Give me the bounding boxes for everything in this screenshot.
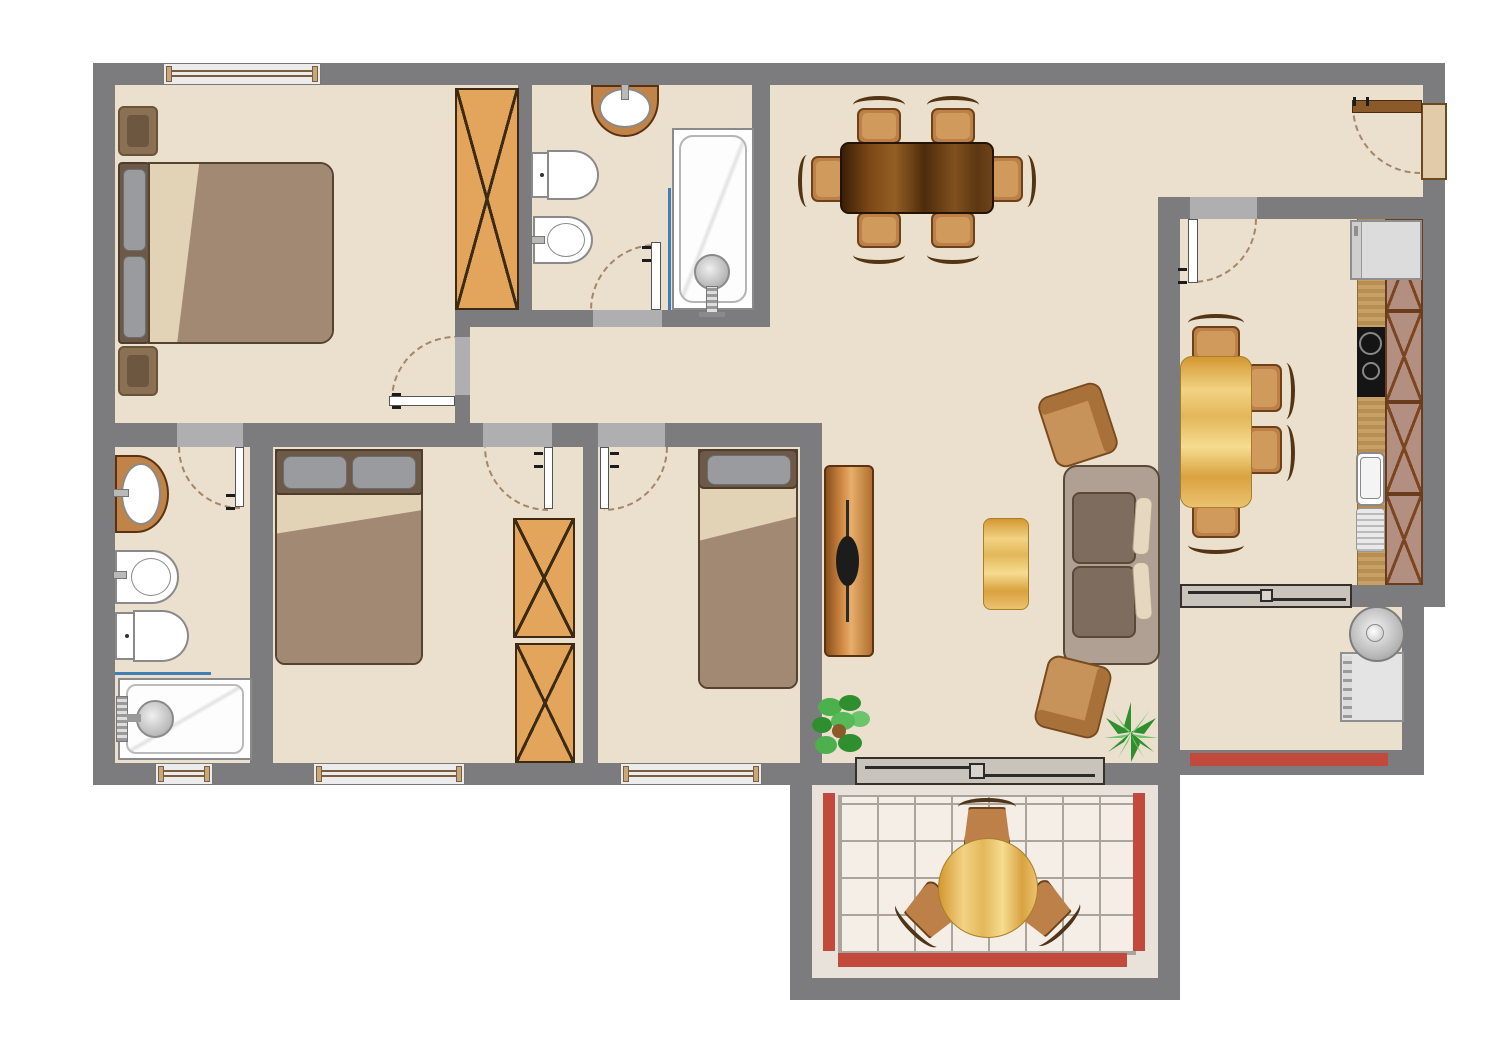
washing-machine-controls <box>1343 656 1352 718</box>
chair-back <box>853 246 905 264</box>
bidet-basin <box>131 558 171 596</box>
shower-screen <box>115 672 211 675</box>
shower-screen <box>668 188 671 310</box>
refrigerator-handle <box>1354 226 1358 236</box>
opening-ensuite <box>177 423 243 447</box>
slider-rail <box>977 774 1095 777</box>
opening-master <box>455 337 470 395</box>
bidet-faucet <box>531 236 545 244</box>
nightstand-top <box>127 115 149 147</box>
wardrobe <box>513 518 575 638</box>
toilet-bowl <box>133 610 189 662</box>
wall-balcony-bottom <box>790 978 1180 1000</box>
door-handle <box>642 246 652 262</box>
kitchen-cabinet <box>1385 402 1423 494</box>
chair-back <box>1018 155 1036 207</box>
toilet-button <box>125 634 129 638</box>
kitchen-cabinet <box>1385 494 1423 585</box>
railing <box>1133 793 1145 951</box>
wall-stub-balcony-r <box>1105 763 1158 785</box>
bidet-basin <box>547 223 585 257</box>
opening-bed2 <box>483 423 552 447</box>
railing <box>838 953 1127 967</box>
bed-pillow <box>123 256 146 338</box>
chair-back <box>798 155 816 207</box>
faucet <box>113 489 129 497</box>
chair-back <box>1188 536 1244 554</box>
wall-bed2-bed3 <box>583 445 598 763</box>
bathtub-handle <box>699 312 725 317</box>
faucet <box>621 84 629 100</box>
door-handle <box>1353 97 1369 107</box>
slider-rail <box>1188 591 1270 594</box>
slider-rail <box>1266 598 1346 601</box>
nightstand-top <box>127 355 149 387</box>
washing-machine-knob <box>1366 624 1384 642</box>
wall-balcony-left <box>790 763 812 1000</box>
bed-pillow <box>123 169 146 251</box>
window-ensuite <box>155 763 213 785</box>
cooktop-burner <box>1359 332 1382 355</box>
door-bed3[interactable] <box>600 447 609 509</box>
sofa-cushion <box>1072 492 1136 564</box>
window-master <box>163 63 321 85</box>
round-table <box>938 838 1038 938</box>
bathtub-faucet <box>694 254 730 290</box>
dining-chair <box>931 212 975 248</box>
sofa-cushion <box>1072 566 1136 638</box>
slider-handle <box>969 763 985 779</box>
chair-back <box>1277 363 1295 419</box>
toilet-bowl <box>547 150 599 200</box>
bed-pillow <box>352 456 416 489</box>
kitchen-table <box>1180 356 1252 508</box>
bed-pillow <box>707 455 791 485</box>
slider-handle <box>1260 589 1273 602</box>
wall-utility-right <box>1402 585 1424 775</box>
dining-table <box>840 142 994 214</box>
dining-chair <box>931 108 975 144</box>
chair-back <box>927 246 979 264</box>
toilet-button <box>540 173 544 177</box>
dining-chair <box>857 108 901 144</box>
door-bed2[interactable] <box>544 447 553 509</box>
wall-stub-balcony-l <box>812 763 855 785</box>
opening-bathroom <box>593 310 662 327</box>
opening-kitchen <box>1190 197 1257 219</box>
shower-rod <box>127 714 141 722</box>
window-bed2 <box>313 763 465 785</box>
bidet-faucet <box>113 571 127 579</box>
kitchen-sink-basin <box>1360 457 1381 499</box>
nightstand <box>118 106 158 156</box>
slider-rail <box>865 766 983 769</box>
wardrobe-master <box>455 88 519 310</box>
sliding-door-balcony[interactable] <box>855 757 1105 785</box>
wall-ensuite-bed2 <box>250 445 273 763</box>
door-ensuite[interactable] <box>235 447 244 507</box>
cooktop-burner <box>1362 362 1380 380</box>
wall-kitchen-bottom <box>1350 585 1445 607</box>
opening-bed3 <box>598 423 665 447</box>
door-handle <box>610 452 620 468</box>
door-bathroom[interactable] <box>651 242 661 310</box>
wardrobe <box>515 643 575 763</box>
shower-faucet <box>136 700 174 738</box>
wall-bath-east <box>752 63 770 327</box>
door-handle <box>1178 268 1188 284</box>
window-bed3 <box>620 763 762 785</box>
plant-icon <box>1100 700 1162 764</box>
door-kitchen[interactable] <box>1188 219 1198 283</box>
bed-pillow <box>283 456 347 489</box>
floor-plan <box>0 0 1500 1045</box>
door-handle <box>534 452 544 468</box>
door-handle <box>226 494 236 510</box>
chair-back <box>1277 425 1295 481</box>
wall-bath-west <box>518 63 532 310</box>
front-door-jamb <box>1421 103 1447 180</box>
railing <box>1190 753 1388 766</box>
plant-icon <box>810 693 872 761</box>
nightstand <box>118 346 158 396</box>
wall-living-kitchen <box>1158 197 1180 1000</box>
tv-icon <box>836 536 859 586</box>
railing <box>823 793 835 951</box>
door-handle <box>392 393 402 409</box>
sliding-door-kitchen-utility[interactable] <box>1180 584 1352 608</box>
coffee-table <box>983 518 1029 610</box>
dining-chair <box>857 212 901 248</box>
drainboard <box>1356 508 1385 552</box>
kitchen-cabinet <box>1385 311 1423 402</box>
